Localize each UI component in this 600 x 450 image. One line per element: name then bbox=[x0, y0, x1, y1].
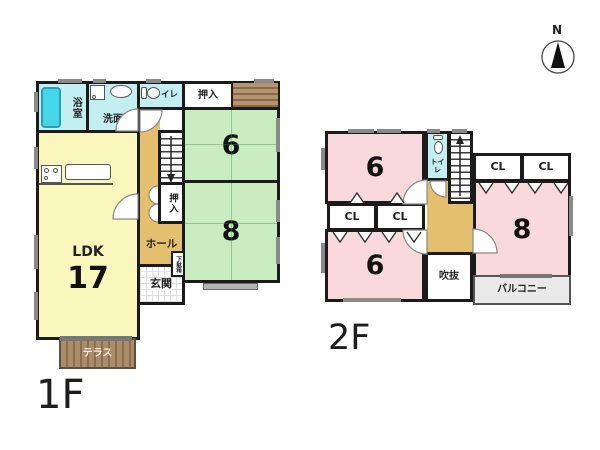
room6-front-2f: 6 bbox=[325, 131, 425, 204]
bathtub-icon bbox=[41, 87, 61, 128]
window bbox=[34, 235, 38, 269]
tatami-line bbox=[231, 183, 232, 280]
room8-2f: 8 bbox=[473, 180, 571, 278]
stairs-1f bbox=[158, 130, 185, 185]
shoe-cabinet-label: 下駄箱 bbox=[175, 256, 181, 273]
window bbox=[452, 129, 467, 133]
floor2-label: 2F bbox=[328, 318, 370, 358]
bathroom-label: 浴室 bbox=[70, 97, 82, 119]
window bbox=[427, 129, 440, 133]
genkan-label: 玄関 bbox=[150, 278, 172, 291]
floor1-label: 1F bbox=[36, 372, 84, 418]
closet-left-1: CL bbox=[327, 203, 377, 231]
porch-step bbox=[203, 283, 258, 290]
window bbox=[343, 298, 401, 302]
tatami-line bbox=[231, 110, 232, 180]
closet-top-1f: 押入 bbox=[182, 81, 234, 110]
room6-front-size: 6 bbox=[366, 152, 385, 183]
toilet-1f-bowl-icon bbox=[147, 87, 160, 99]
tatami-line bbox=[185, 144, 277, 145]
ldk-label: LDK bbox=[72, 244, 103, 260]
window bbox=[276, 118, 280, 152]
closet-stairs-1f: 押入 bbox=[158, 182, 185, 224]
compass-n-label: N bbox=[552, 24, 562, 38]
closet-label: CL bbox=[490, 161, 505, 174]
toilet-2f-bowl-icon bbox=[434, 141, 443, 154]
kitchen-divider bbox=[39, 183, 113, 185]
window bbox=[321, 148, 325, 170]
stove-burner-icon bbox=[44, 168, 49, 173]
window bbox=[321, 243, 325, 273]
window bbox=[146, 79, 161, 83]
closet-left-2: CL bbox=[375, 203, 425, 231]
window bbox=[276, 200, 280, 222]
terrace-label: テラス bbox=[83, 348, 113, 360]
window bbox=[34, 147, 38, 169]
window bbox=[58, 79, 82, 83]
ldk-room: LDK 17 bbox=[36, 130, 140, 340]
window bbox=[34, 292, 38, 320]
window bbox=[348, 129, 374, 133]
room6-rear-size: 6 bbox=[366, 250, 385, 281]
tatami-line bbox=[185, 223, 277, 224]
window bbox=[93, 79, 106, 83]
closet-stairs-label: 押入 bbox=[166, 193, 177, 214]
balcony-label: バルコニー bbox=[497, 284, 547, 296]
sink-icon bbox=[110, 85, 132, 98]
wood-deck bbox=[231, 81, 280, 110]
window bbox=[569, 196, 573, 236]
closet-label: CL bbox=[538, 161, 553, 174]
terrace: テラス bbox=[59, 338, 136, 369]
washer-knob-icon bbox=[92, 95, 96, 99]
stove-burner-icon bbox=[44, 176, 48, 180]
hall-label: ホール bbox=[140, 238, 183, 250]
floor2-plan: 6 トイレ CL CL 8 CL CL 6 吹抜 バルコニー bbox=[300, 0, 600, 450]
window bbox=[276, 237, 280, 264]
void-label: 吹抜 bbox=[439, 271, 459, 283]
window bbox=[34, 92, 38, 112]
closet-right-1: CL bbox=[473, 153, 523, 182]
washroom-label: 洗面 bbox=[103, 114, 123, 126]
kitchen-counter-icon bbox=[65, 164, 111, 180]
room8-size: 8 bbox=[513, 214, 532, 245]
window bbox=[254, 79, 274, 83]
sliding-door bbox=[60, 336, 132, 341]
ldk-size: 17 bbox=[67, 261, 109, 296]
void-fukinuke: 吹抜 bbox=[425, 252, 473, 302]
balcony: バルコニー bbox=[473, 275, 571, 305]
closet-label: CL bbox=[344, 211, 359, 224]
sliding-door bbox=[500, 274, 552, 278]
closet-right-2: CL bbox=[521, 153, 571, 182]
stairs-2f bbox=[448, 131, 473, 204]
closet-label: CL bbox=[392, 211, 407, 224]
floorplan-page: { "compass": { "label": "N" }, "floor1":… bbox=[0, 0, 600, 450]
stove-burner-icon bbox=[53, 168, 58, 173]
toilet-2f-tank-icon bbox=[433, 135, 443, 140]
room6-rear-2f: 6 bbox=[325, 229, 425, 302]
closet-top-label: 押入 bbox=[198, 90, 218, 102]
window bbox=[377, 129, 401, 133]
toilet-2f-label: トイレ bbox=[428, 158, 447, 174]
shoe-cabinet: 下駄箱 bbox=[171, 251, 185, 277]
